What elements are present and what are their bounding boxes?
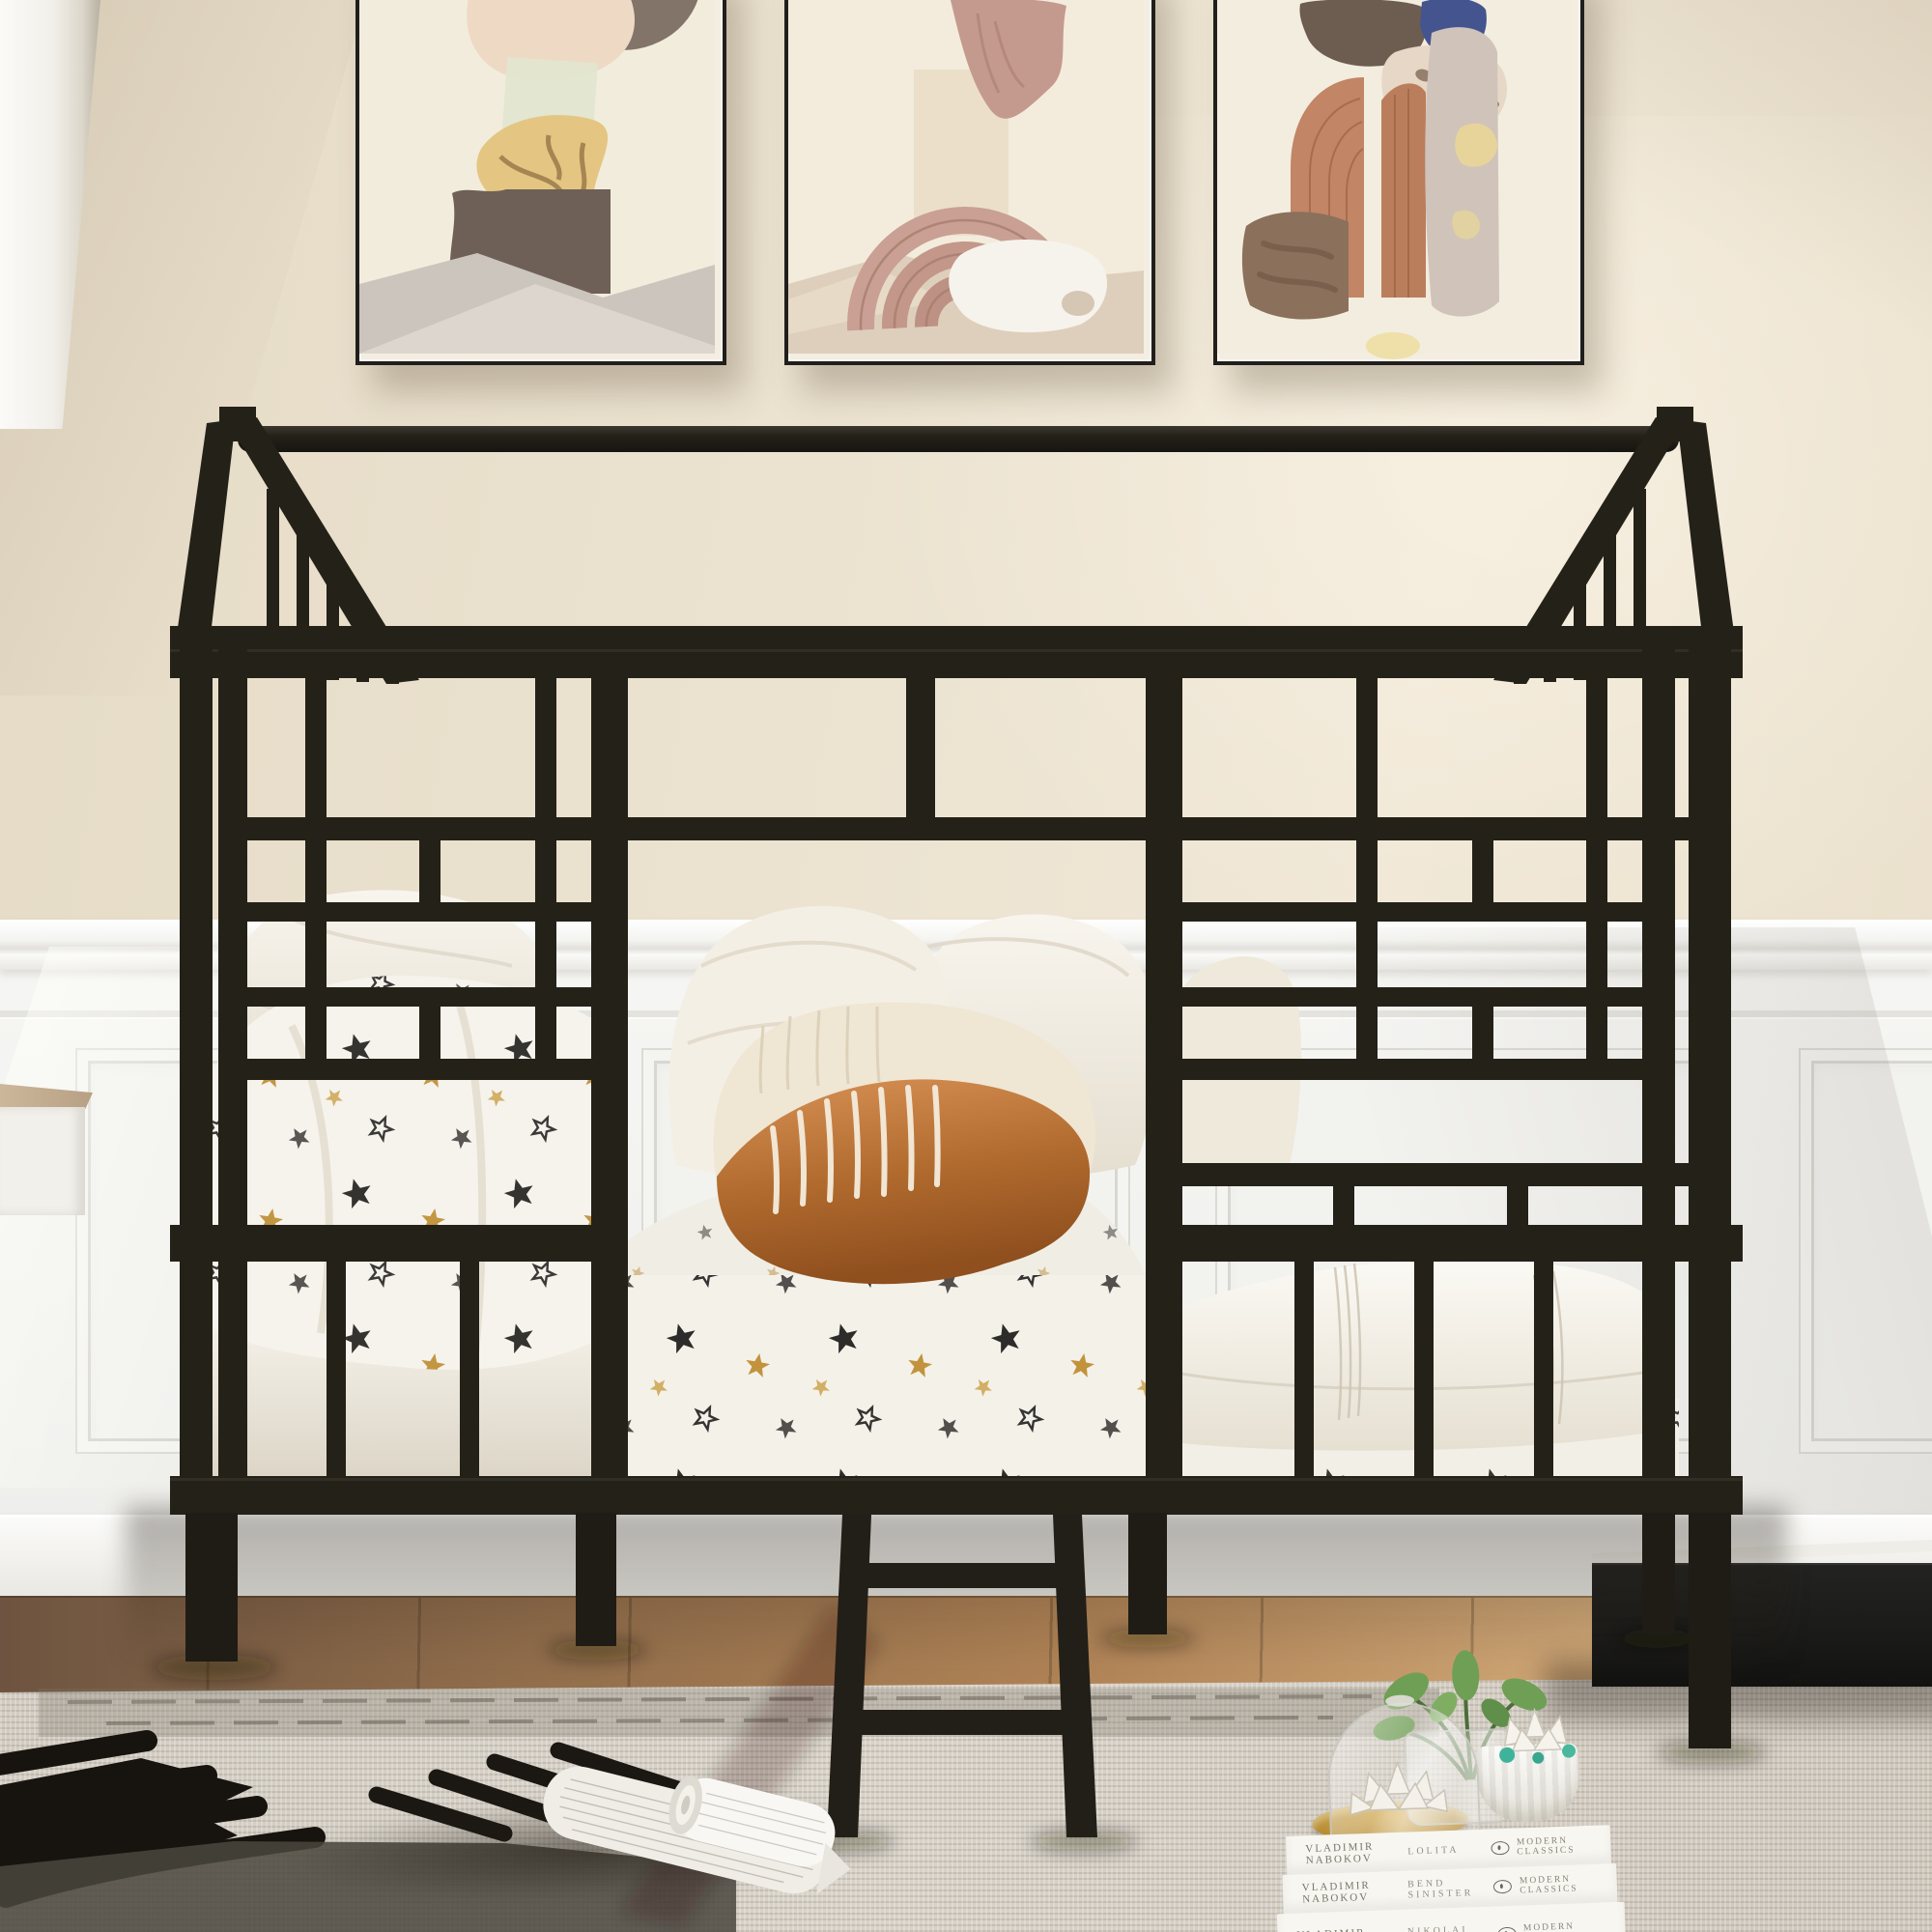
middle-connector [906,676,935,821]
book-title: BEND SINISTER [1407,1876,1494,1900]
book-author: VLADIMIR NABOKOV [1283,1879,1408,1907]
book-author: VLADIMIR NABOKOV [1277,1926,1407,1932]
book-title: LOLITA [1407,1843,1491,1857]
roof-ridge-beam [238,426,1679,452]
white-succulent [1329,1756,1466,1829]
book-author: VLADIMIR NABOKOV [1286,1840,1407,1867]
book-imprint: MODERN CLASSICS [1517,1834,1611,1857]
ladder [827,1515,1097,1837]
center-left-post [591,676,628,1513]
bottom-rail [170,1476,1743,1515]
book-title: NIKOLAI GOGOL [1407,1923,1498,1932]
penguin-logo-icon [1491,1841,1509,1856]
book-imprint: MODERN CLASSICS [1520,1873,1617,1896]
decor-stack: VLADIMIR NABOKOV LOLITA MODERN CLASSICS … [1269,1676,1684,1932]
house-bed [0,0,1932,1932]
center-right-post [1146,676,1182,1513]
penguin-logo-icon [1497,1927,1516,1932]
rolled-magazine [533,1754,867,1905]
bowl-succulent [1482,1706,1590,1774]
right-rear-post [1642,626,1675,1513]
book-imprint: MODERN CLASSICS [1523,1920,1626,1932]
right-front-post [1689,626,1731,1513]
penguin-logo-icon [1493,1880,1512,1894]
room-scene: VLADIMIR NABOKOV LOLITA MODERN CLASSICS … [0,0,1932,1932]
terracotta-pillow [714,1003,1096,1285]
left-star-quilt [207,976,628,1370]
left-front-post [218,626,247,1513]
left-rear-post [180,626,213,1513]
